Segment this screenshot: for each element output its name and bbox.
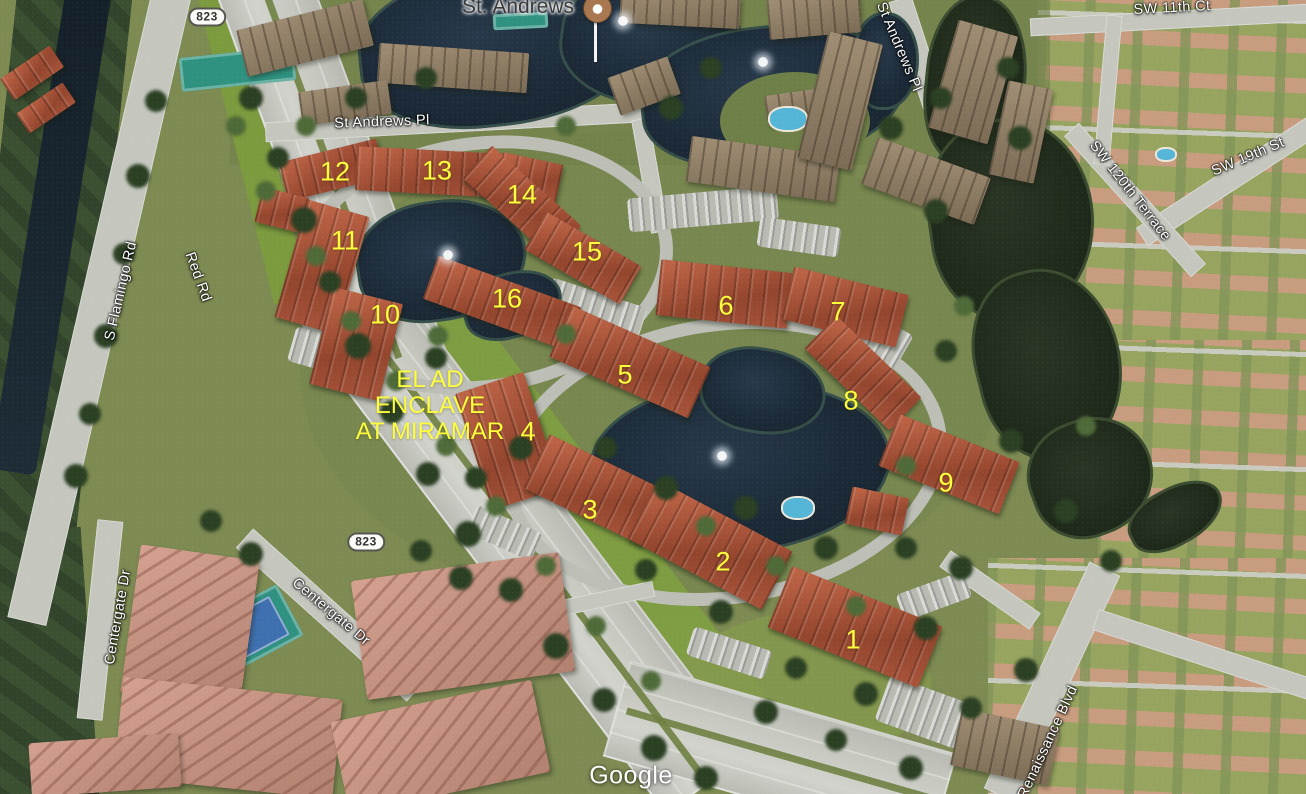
building-number-3: 3 (582, 495, 597, 526)
building-number-11: 11 (331, 226, 359, 257)
route-shield-823-north: 823 (188, 8, 226, 27)
poi-label-st-andrews: St. Andrews (462, 0, 574, 19)
building-number-5: 5 (617, 360, 632, 391)
poi-marker-stem (594, 20, 597, 62)
road-label-red-rd: Red Rd (182, 250, 215, 304)
tree-canopy-light (0, 0, 12, 12)
building-number-8: 8 (843, 386, 858, 417)
fountain (758, 57, 768, 67)
building-number-12: 12 (320, 157, 350, 188)
building-number-16: 16 (492, 284, 522, 315)
centergate-building (351, 552, 576, 700)
overlay-line-1: EL AD (356, 367, 504, 393)
fountain (443, 250, 453, 260)
building-number-6: 6 (718, 291, 733, 322)
building-number-2: 2 (715, 547, 730, 578)
building-number-10: 10 (370, 300, 400, 331)
building-number-7: 7 (830, 297, 845, 328)
route-shield-823-south: 823 (347, 533, 385, 552)
building-number-14: 14 (507, 180, 537, 211)
building-number-9: 9 (938, 468, 953, 499)
building-number-15: 15 (572, 237, 602, 268)
overlay-line-2: ENCLAVE (356, 393, 504, 419)
community-overlay-title: EL AD ENCLAVE AT MIRAMAR (356, 367, 504, 445)
satellite-map[interactable]: S Flamingo Rd Red Rd St Andrews Pl St An… (0, 0, 1306, 794)
centergate-building (28, 733, 181, 794)
centergate-building (330, 680, 550, 794)
overlay-line-3: AT MIRAMAR (356, 419, 504, 445)
building-number-1: 1 (845, 625, 860, 656)
building-number-13: 13 (422, 156, 452, 187)
fountain (618, 16, 628, 26)
fountain (717, 451, 727, 461)
pool-enclave (781, 496, 815, 520)
google-logo[interactable]: Google (589, 762, 673, 791)
road-label-st-andrews-pl: St Andrews Pl (334, 112, 430, 131)
pool-st-andrews (768, 106, 808, 132)
building-number-4: 4 (520, 417, 535, 448)
pool-suburb (1155, 147, 1177, 162)
